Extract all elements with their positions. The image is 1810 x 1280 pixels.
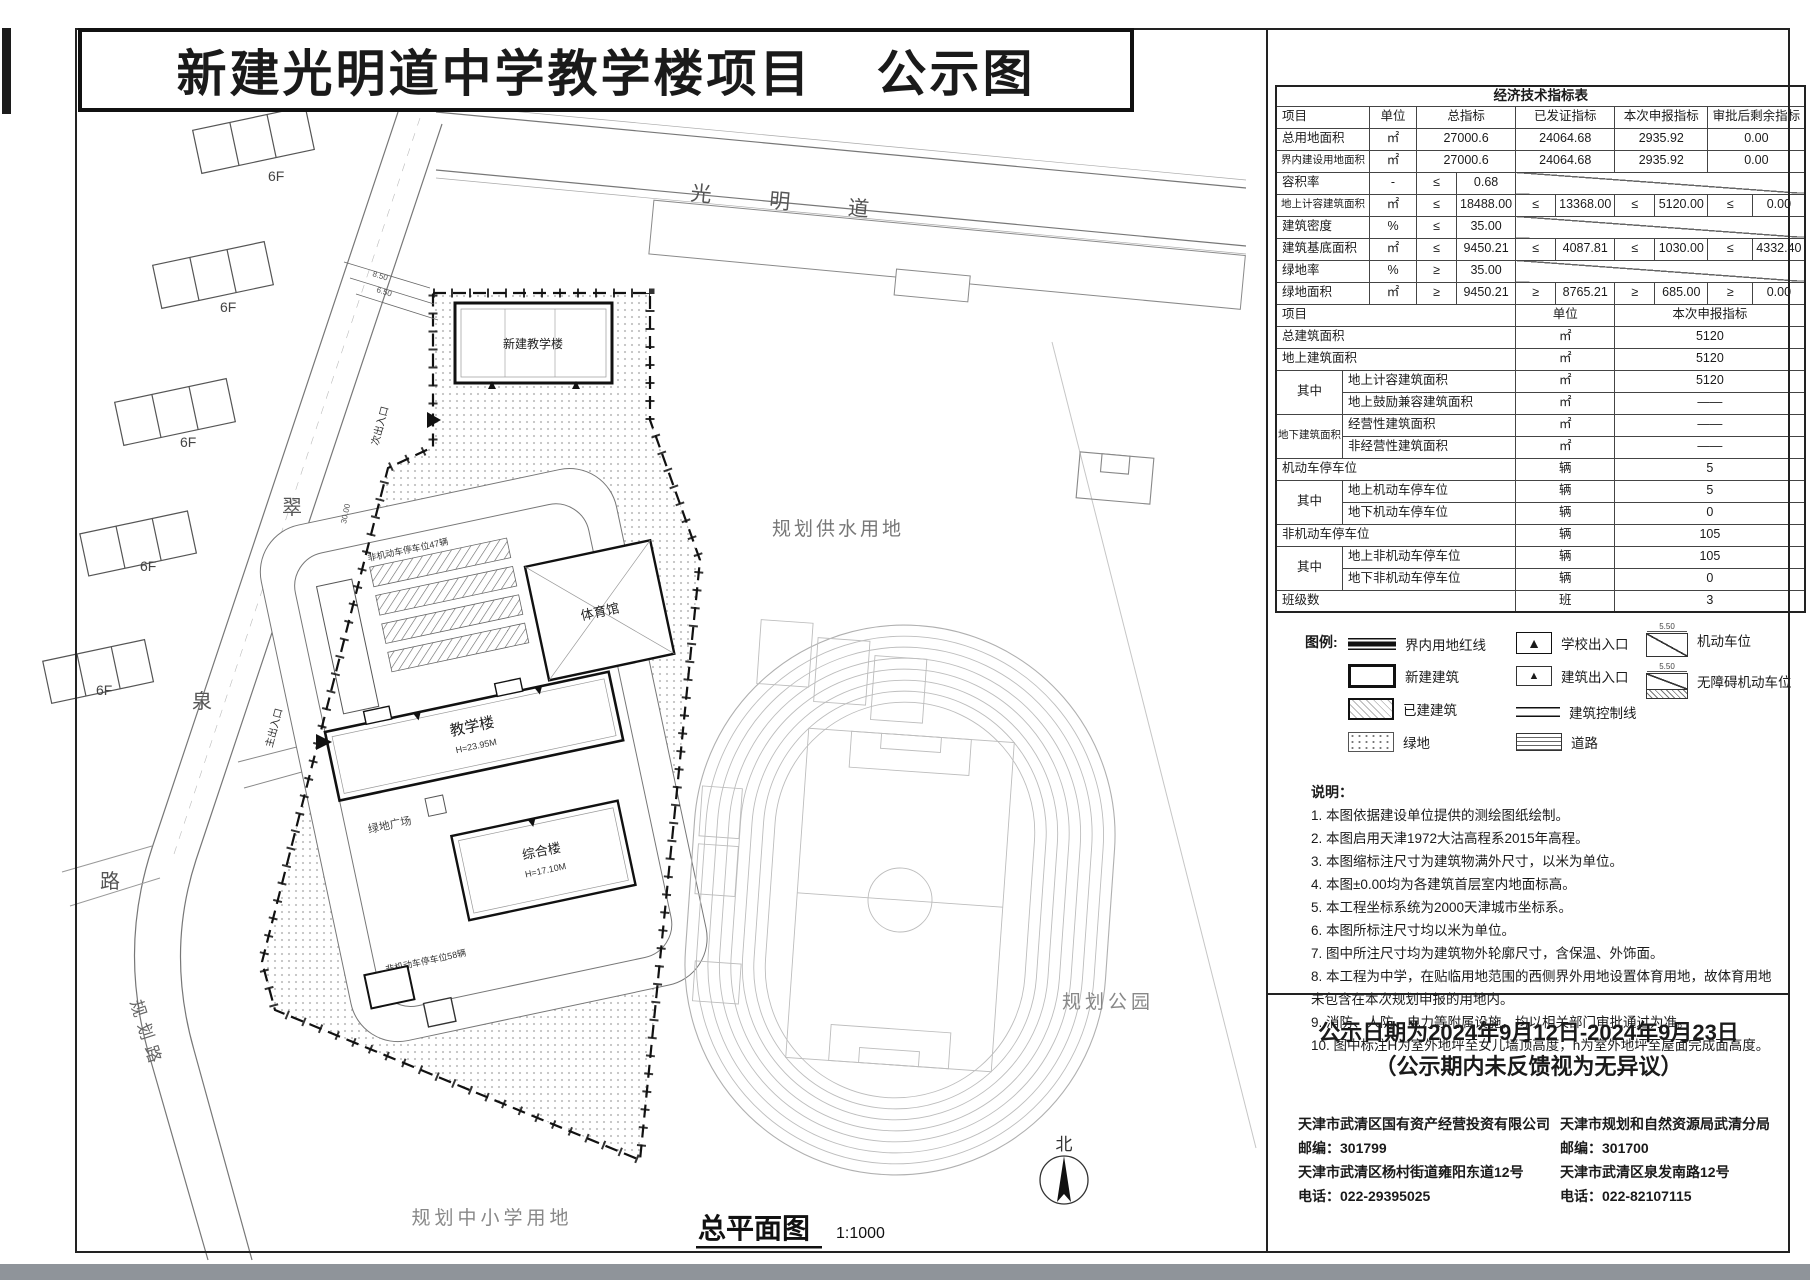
table-cell: ㎡: [1516, 392, 1615, 414]
sports-courts: [687, 616, 928, 1015]
legend-item-accessible-parking: 5.50 无障碍机动车位: [1646, 662, 1792, 699]
title-suffix: 公示图: [877, 34, 1036, 106]
entrance-main-label: 主出入口: [262, 707, 285, 749]
table-cell: 辆: [1516, 524, 1615, 546]
note-line: 1. 本图依据建设单位提供的测绘图纸绘制。: [1311, 804, 1783, 827]
school-entrance-swatch-icon: ▲: [1516, 632, 1552, 654]
table-cell: 685.00: [1655, 282, 1708, 304]
legend-label: 学校出入口: [1561, 633, 1629, 653]
gym-building: 体育馆: [525, 540, 674, 680]
table-cell: 0.00: [1708, 150, 1806, 172]
table-cell: [1516, 260, 1806, 282]
table-cell: 5120: [1615, 370, 1806, 392]
table-cell: 5120: [1615, 326, 1806, 348]
table-cell: 9450.21: [1457, 282, 1516, 304]
table-cell: ㎡: [1370, 282, 1417, 304]
table-cell: 0: [1615, 502, 1806, 524]
table-cell: 其中: [1276, 546, 1343, 590]
legend-label: 界内用地红线: [1405, 634, 1486, 654]
table-cell: 本次申报指标: [1615, 106, 1708, 128]
notice-line-2: （公示期内未反馈视为无异议）: [1268, 1050, 1789, 1084]
table-cell: 审批后剩余指标: [1708, 106, 1806, 128]
table-cell: 105: [1615, 524, 1806, 546]
table-cell: 单位: [1516, 304, 1615, 326]
table-cell: 1030.00: [1655, 238, 1708, 260]
table-cell: 地下建筑面积: [1276, 414, 1343, 458]
public-notice-dates: 公示日期为2024年9月12日-2024年9月23日 （公示期内未反馈视为无异议…: [1268, 1016, 1789, 1084]
table-cell: 5120: [1615, 348, 1806, 370]
table-cell: 地上机动车停车位: [1343, 480, 1516, 502]
table-cell: [1516, 172, 1806, 194]
road-label-guangmingdao: 光明道: [690, 182, 928, 227]
legend-label: 无障碍机动车位: [1697, 671, 1792, 691]
dim-label: 6.50: [375, 285, 393, 298]
table-cell: 总指标: [1417, 106, 1516, 128]
legend-label: 新建建筑: [1405, 666, 1459, 686]
table-cell: 建筑基底面积: [1276, 238, 1370, 260]
table-cell: ——: [1615, 436, 1806, 458]
table-cell: 辆: [1516, 458, 1615, 480]
parking-dim-label: 5.50: [1647, 622, 1687, 632]
table-cell: 5: [1615, 458, 1806, 480]
table-cell: ≤: [1516, 194, 1556, 216]
table-cell: 总用地面积: [1276, 128, 1370, 150]
table-cell: 界内建设用地面积: [1276, 150, 1370, 172]
legend-label: 已建建筑: [1403, 699, 1457, 719]
table-cell: ≤: [1417, 216, 1457, 238]
legend-item-parking: 5.50 机动车位: [1646, 622, 1751, 657]
floor-label: 6F: [268, 168, 284, 184]
table-cell: ㎡: [1516, 370, 1615, 392]
legend-item-school-entrance: ▲ 学校出入口: [1516, 632, 1629, 654]
table-cell: 0.00: [1753, 282, 1806, 304]
legend-label: 道路: [1571, 732, 1598, 752]
road-label-cui: 翠: [282, 497, 302, 519]
table-cell: 24064.68: [1516, 150, 1615, 172]
table-cell: %: [1370, 260, 1417, 282]
table-cell: 其中: [1276, 370, 1343, 414]
note-line: 2. 本图启用天津1972大沽高程系2015年高程。: [1311, 827, 1783, 850]
table-cell: 辆: [1516, 480, 1615, 502]
table-cell: 班级数: [1276, 590, 1516, 612]
contact-authority: 天津市规划和自然资源局武清分局 邮编：301700 天津市武清区泉发南路12号 …: [1560, 1112, 1770, 1208]
legend-label: 机动车位: [1697, 630, 1751, 650]
table-cell: ≥: [1417, 260, 1457, 282]
table-cell: ≥: [1516, 282, 1556, 304]
floor-label: 6F: [180, 434, 196, 450]
legend-label: 建筑控制线: [1569, 702, 1637, 722]
north-label: 北: [1056, 1135, 1073, 1154]
table-cell: 建筑密度: [1276, 216, 1370, 238]
table-cell: 8765.21: [1556, 282, 1615, 304]
table-cell: 0: [1615, 568, 1806, 590]
new-teaching-building: 新建教学楼: [455, 303, 612, 389]
table-cell: 2935.92: [1615, 150, 1708, 172]
pump-station: [1076, 452, 1154, 504]
parking-swatch-icon: [1646, 633, 1688, 657]
table-cell: 27000.6: [1417, 128, 1516, 150]
table-cell: 4087.81: [1556, 238, 1615, 260]
plan-caption-title: 总平面图: [698, 1213, 810, 1244]
contact-phone: 电话：022-29395025: [1298, 1184, 1550, 1208]
table-cell: 经济技术指标表: [1276, 86, 1805, 106]
title-main: 新建光明道中学教学楼项目: [177, 34, 813, 106]
table-cell: 辆: [1516, 568, 1615, 590]
legend-item-red-line: 界内用地红线: [1348, 634, 1486, 654]
table-cell: 35.00: [1457, 260, 1516, 282]
table-cell: ≤: [1708, 238, 1753, 260]
table-cell: 0.00: [1753, 194, 1806, 216]
contact-phone: 电话：022-82107115: [1560, 1184, 1770, 1208]
north-needle-icon: [1057, 1156, 1071, 1202]
north-arrow: 北: [1040, 1135, 1088, 1204]
title-box: 新建光明道中学教学楼项目 公示图: [78, 28, 1134, 112]
table-cell: ≤: [1516, 238, 1556, 260]
notes-title: 说明：: [1311, 782, 1783, 802]
table-cell: 非机动车停车位: [1276, 524, 1516, 546]
table-cell: 5: [1615, 480, 1806, 502]
legend-title: 图例:: [1305, 632, 1338, 652]
table-cell: 18488.00: [1457, 194, 1516, 216]
table-cell: ㎡: [1516, 436, 1615, 458]
table-cell: 105: [1615, 546, 1806, 568]
new-teaching-label: 新建教学楼: [503, 336, 563, 351]
table-cell: 绿地面积: [1276, 282, 1370, 304]
table-cell: -: [1370, 172, 1417, 194]
area-label-water: 规划供水用地: [772, 518, 904, 540]
table-cell: ——: [1615, 392, 1806, 414]
road-label-guihualu: 规划路: [126, 997, 166, 1071]
public-notice-sheet: 6F 6F 6F 6F 6F 非机动车停车位47辆: [0, 0, 1810, 1280]
contact-postal: 邮编：301700: [1560, 1136, 1770, 1160]
accessible-parking-swatch-icon: [1646, 673, 1688, 689]
table-cell: 地上鼓励兼容建筑面积: [1343, 392, 1516, 414]
note-line: 4. 本图±0.00均为各建筑首层室内地面标高。: [1311, 873, 1783, 896]
table-cell: 非经营性建筑面积: [1343, 436, 1516, 458]
contact-postal: 邮编：301799: [1298, 1136, 1550, 1160]
table-cell: 27000.6: [1417, 150, 1516, 172]
red-line-swatch-icon: [1348, 638, 1396, 650]
legend-item-existing-building: 已建建筑: [1348, 698, 1457, 720]
running-track: [671, 611, 1129, 1189]
floor-label: 6F: [220, 299, 236, 315]
table-cell: 辆: [1516, 546, 1615, 568]
dim-label: 8.50: [371, 269, 389, 282]
utility-house: [424, 998, 456, 1027]
contact-name: 天津市武清区国有资产经营投资有限公司: [1298, 1112, 1550, 1136]
table-cell: 35.00: [1457, 216, 1516, 238]
table-cell: 地上非机动车停车位: [1343, 546, 1516, 568]
table-cell: 13368.00: [1556, 194, 1615, 216]
road-guangmingdao: [436, 104, 1246, 254]
table-cell: 总建筑面积: [1276, 326, 1516, 348]
table-cell: 24064.68: [1516, 128, 1615, 150]
legend-item-building-entrance: ▲ 建筑出入口: [1516, 666, 1629, 686]
legend-label: 绿地: [1403, 732, 1430, 752]
supply-land-band: [647, 200, 1245, 327]
entrance-secondary-label: 次出入口: [368, 405, 391, 447]
legend-item-green: 绿地: [1348, 732, 1430, 752]
table-cell: ≤: [1708, 194, 1753, 216]
table-cell: ㎡: [1370, 150, 1417, 172]
table-cell: ≥: [1417, 282, 1457, 304]
plan-caption: 总平面图 1:1000: [696, 1213, 885, 1249]
table-cell: 地上计容建筑面积: [1276, 194, 1370, 216]
control-line-swatch-icon: [1516, 707, 1560, 717]
table-cell: 0.68: [1457, 172, 1516, 194]
table-cell: 地上计容建筑面积: [1343, 370, 1516, 392]
area-label-park: 规划公园: [1062, 991, 1154, 1013]
table-cell: ≥: [1615, 282, 1655, 304]
road-label-quan: 泉: [192, 690, 212, 713]
table-cell: ≤: [1417, 172, 1457, 194]
table-cell: ㎡: [1516, 414, 1615, 436]
contact-name: 天津市规划和自然资源局武清分局: [1560, 1112, 1770, 1136]
legend-item-control-line: 建筑控制线: [1516, 702, 1637, 722]
notice-line-1: 公示日期为2024年9月12日-2024年9月23日: [1268, 1016, 1789, 1050]
scan-artifact: [2, 28, 11, 114]
table-cell: 项目: [1276, 304, 1516, 326]
floor-label: 6F: [96, 682, 112, 698]
legend-item-road: 道路: [1516, 732, 1598, 752]
flag-platform: [425, 795, 446, 816]
table-cell: ㎡: [1370, 238, 1417, 260]
table-cell: ㎡: [1516, 348, 1615, 370]
accessible-parking-hatch-icon: [1646, 689, 1688, 699]
floor-label: 6F: [140, 558, 156, 574]
table-cell: 4332.40: [1753, 238, 1806, 260]
table-cell: 绿地率: [1276, 260, 1370, 282]
economic-indicators-table: 经济技术指标表项目单位总指标已发证指标本次申报指标审批后剩余指标总用地面积㎡27…: [1275, 85, 1806, 613]
table-cell: [1516, 216, 1806, 238]
football-field: [786, 728, 1015, 1072]
road-swatch-icon: [1516, 733, 1562, 751]
table-cell: 辆: [1516, 502, 1615, 524]
table-cell: 地下非机动车停车位: [1343, 568, 1516, 590]
table-cell: %: [1370, 216, 1417, 238]
table-cell: 地上建筑面积: [1276, 348, 1516, 370]
building-entrance-swatch-icon: ▲: [1516, 666, 1552, 686]
contact-address: 天津市武清区泉发南路12号: [1560, 1160, 1770, 1184]
table-cell: 5120.00: [1655, 194, 1708, 216]
table-cell: ㎡: [1370, 194, 1417, 216]
note-line: 8. 本工程为中学，在贴临用地范围的西侧界外用地设置体育用地，故体育用地未包含在…: [1311, 965, 1783, 1011]
table-cell: 2935.92: [1615, 128, 1708, 150]
table-cell: 3: [1615, 590, 1806, 612]
legend-item-new-building: 新建建筑: [1348, 664, 1459, 688]
table-cell: ≤: [1615, 194, 1655, 216]
table-cell: 0.00: [1708, 128, 1806, 150]
table-cell: 机动车停车位: [1276, 458, 1516, 480]
contact-address: 天津市武清区杨村街道雍阳东道12号: [1298, 1160, 1550, 1184]
table-cell: ≥: [1708, 282, 1753, 304]
existing-building-swatch-icon: [1348, 698, 1394, 720]
table-cell: 容积率: [1276, 172, 1370, 194]
note-line: 7. 图中所注尺寸均为建筑物外轮廓尺寸，含保温、外饰面。: [1311, 942, 1783, 965]
legend-label: 建筑出入口: [1561, 666, 1629, 686]
note-line: 3. 本图缩标注尺寸为建筑物满外尺寸，以米为单位。: [1311, 850, 1783, 873]
table-cell: 班: [1516, 590, 1615, 612]
contact-developer: 天津市武清区国有资产经营投资有限公司 邮编：301799 天津市武清区杨村街道雍…: [1298, 1112, 1550, 1208]
notice-divider: [1268, 993, 1789, 995]
table-cell: 单位: [1370, 106, 1417, 128]
table-cell: 本次申报指标: [1615, 304, 1806, 326]
table-cell: 经营性建筑面积: [1343, 414, 1516, 436]
table-cell: ≤: [1417, 238, 1457, 260]
table-cell: ≤: [1417, 194, 1457, 216]
road-label-lu: 路: [100, 870, 120, 893]
table-cell: ≤: [1615, 238, 1655, 260]
note-line: 6. 本图所标注尺寸均以米为单位。: [1311, 919, 1783, 942]
plan-caption-scale: 1:1000: [836, 1225, 885, 1242]
table-cell: ㎡: [1516, 326, 1615, 348]
scan-bottom-band: [0, 1264, 1810, 1280]
table-cell: 其中: [1276, 480, 1343, 524]
table-cell: ——: [1615, 414, 1806, 436]
accessible-parking-dim-label: 5.50: [1647, 662, 1687, 672]
area-label-school-land: 规划中小学用地: [411, 1207, 572, 1229]
table-cell: 已发证指标: [1516, 106, 1615, 128]
table-cell: 项目: [1276, 106, 1370, 128]
new-building-swatch-icon: [1348, 664, 1396, 688]
panel-divider: [1266, 28, 1268, 1253]
table-cell: ㎡: [1370, 128, 1417, 150]
green-space-swatch-icon: [1348, 732, 1394, 752]
table-cell: 地下机动车停车位: [1343, 502, 1516, 524]
note-line: 5. 本工程坐标系统为2000天津城市坐标系。: [1311, 896, 1783, 919]
table-cell: 9450.21: [1457, 238, 1516, 260]
